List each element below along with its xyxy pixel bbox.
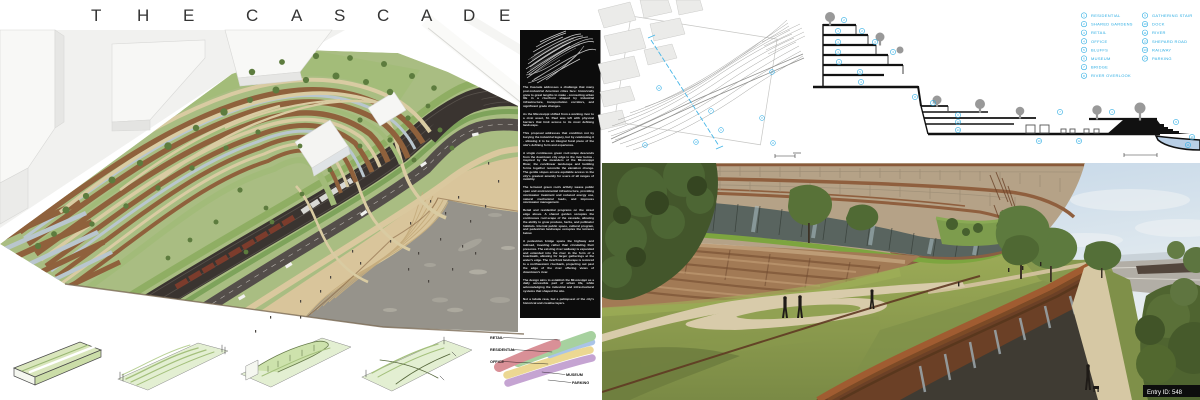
svg-text:13: 13	[956, 120, 960, 124]
svg-text:10: 10	[1143, 22, 1147, 26]
svg-text:12: 12	[1077, 139, 1081, 143]
svg-text:BRIDGE: BRIDGE	[1091, 65, 1108, 70]
svg-text:RESIDENTIAL: RESIDENTIAL	[490, 348, 516, 352]
svg-text:7: 7	[710, 109, 712, 113]
svg-text:10: 10	[695, 140, 698, 144]
svg-text:13: 13	[771, 70, 774, 74]
svg-text:1: 1	[837, 29, 839, 33]
svg-text:PARKING: PARKING	[1152, 56, 1172, 61]
svg-text:5: 5	[1083, 48, 1085, 52]
svg-text:DOCK: DOCK	[1152, 22, 1165, 27]
svg-text:5: 5	[859, 70, 861, 74]
svg-text:14: 14	[956, 128, 960, 132]
svg-text:PARKING: PARKING	[572, 381, 589, 385]
svg-text:12: 12	[658, 86, 661, 90]
svg-text:2: 2	[843, 18, 845, 22]
svg-text:Entry ID: 548: Entry ID: 548	[1147, 390, 1183, 396]
svg-text:RIVER OVERLOOK: RIVER OVERLOOK	[1091, 73, 1131, 78]
svg-text:7: 7	[1083, 65, 1085, 69]
svg-text:6: 6	[1083, 57, 1085, 61]
svg-text:1: 1	[1083, 14, 1085, 18]
svg-text:3: 3	[874, 40, 876, 44]
svg-text:1: 1	[837, 50, 839, 54]
svg-text:RIVER: RIVER	[1152, 30, 1166, 35]
svg-text:1: 1	[837, 40, 839, 44]
svg-text:4: 4	[860, 80, 862, 84]
svg-text:8: 8	[1083, 74, 1085, 78]
svg-text:OFFICE: OFFICE	[490, 360, 504, 364]
svg-text:10: 10	[1190, 135, 1194, 139]
svg-text:BLUFFS: BLUFFS	[1091, 47, 1108, 52]
svg-text:SHEPARD ROAD: SHEPARD ROAD	[1152, 39, 1187, 44]
svg-text:MUSEUM: MUSEUM	[1091, 56, 1111, 61]
svg-text:1: 1	[838, 60, 840, 64]
svg-text:8: 8	[914, 95, 916, 99]
svg-text:13: 13	[1037, 139, 1041, 143]
svg-text:RESIDENTIAL: RESIDENTIAL	[1091, 13, 1121, 18]
svg-text:RETAIL: RETAIL	[490, 336, 504, 340]
svg-text:RETAIL: RETAIL	[1091, 30, 1107, 35]
svg-text:3: 3	[1083, 31, 1085, 35]
svg-text:8: 8	[761, 116, 763, 120]
svg-text:9: 9	[1175, 120, 1177, 124]
svg-text:MUSEUM: MUSEUM	[566, 373, 583, 377]
svg-text:OFFICE: OFFICE	[1091, 39, 1107, 44]
svg-text:11: 11	[772, 141, 775, 145]
svg-text:2: 2	[861, 29, 863, 33]
svg-text:SHARED GARDENS: SHARED GARDENS	[1091, 22, 1133, 27]
svg-text:3: 3	[892, 50, 894, 54]
svg-text:GATHERING STAIR: GATHERING STAIR	[1152, 13, 1193, 18]
svg-text:12: 12	[1143, 39, 1147, 43]
svg-text:7: 7	[1059, 110, 1061, 114]
svg-text:9: 9	[1144, 14, 1146, 18]
svg-text:11: 11	[1187, 143, 1190, 147]
svg-text:2: 2	[1083, 22, 1085, 26]
svg-text:11: 11	[1143, 31, 1146, 35]
svg-text:13: 13	[1143, 48, 1147, 52]
svg-text:1: 1	[1111, 110, 1113, 114]
svg-text:6: 6	[957, 113, 959, 117]
svg-text:RAILWAY: RAILWAY	[1152, 47, 1171, 52]
svg-text:4: 4	[1083, 39, 1085, 43]
svg-text:14: 14	[1143, 57, 1147, 61]
svg-text:6: 6	[720, 128, 722, 132]
